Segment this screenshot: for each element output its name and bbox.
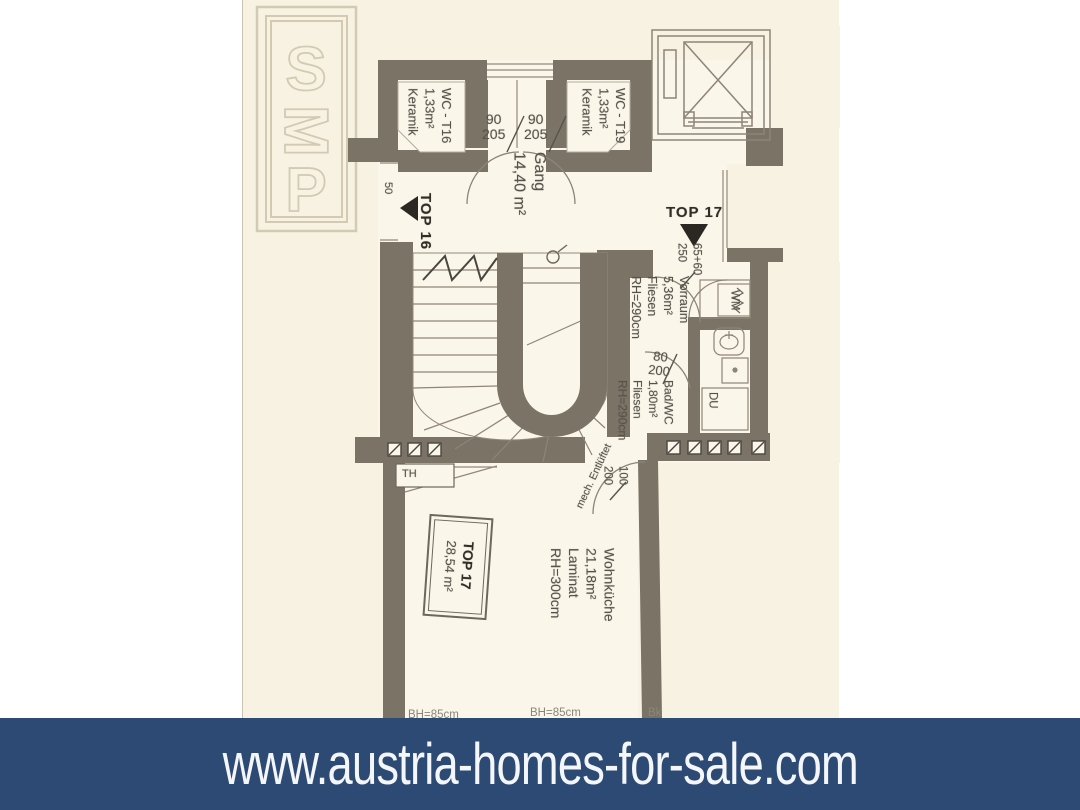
room-label-vorraum: Vorraum5,36m² FliesenRH=290cm [628,276,692,339]
door-label-top16-width: 50 [381,182,395,194]
th-label: TH [402,467,417,481]
logo-letter-s: S [285,35,326,104]
door-label-top17: 65+60250 [674,243,703,275]
room-label-bad: Bad/WC1,80m² FliesenRH=290cm [614,380,675,440]
flue [752,441,765,454]
flue [408,443,421,456]
flue [728,441,741,454]
logo-letter-m: M [271,105,340,157]
room-label-wc-t16: WC - T161,33m²Keramik [404,88,454,143]
room-label-wc-t19: WC - T191,33m²Keramik [578,88,628,143]
website-url: www.austria-homes-for-sale.com [222,731,857,798]
unit-area-box-top17: TOP 17 28,54 m² [423,514,494,620]
shower-label: DU [705,392,720,409]
flue [667,441,680,454]
unit-label-top16: TOP 16 [416,193,435,250]
logo-letter-p: P [285,156,326,225]
flue [688,441,701,454]
smp-watermark-logo: S M P [257,7,356,231]
flue [428,443,441,456]
flue [708,441,721,454]
door-label-wc-right: 90205 [524,112,547,141]
washing-machine-label: WM [727,290,742,310]
door-label-wc-left: 90205 [482,112,505,141]
unit-area-box-inner-border [428,519,488,615]
website-banner: www.austria-homes-for-sale.com [0,718,1080,810]
door-label-wohnkueche: 100200 [600,466,629,485]
page: S M P [0,0,1080,810]
room-label-gang: Gang14,40 m² [508,152,549,215]
room-label-wohnkueche: Wohnküche21,18m² LaminatRH=300cm [546,548,618,622]
unit-label-top17: TOP 17 [666,203,723,222]
door-label-bad: 80200 [648,349,672,378]
flue [388,443,401,456]
